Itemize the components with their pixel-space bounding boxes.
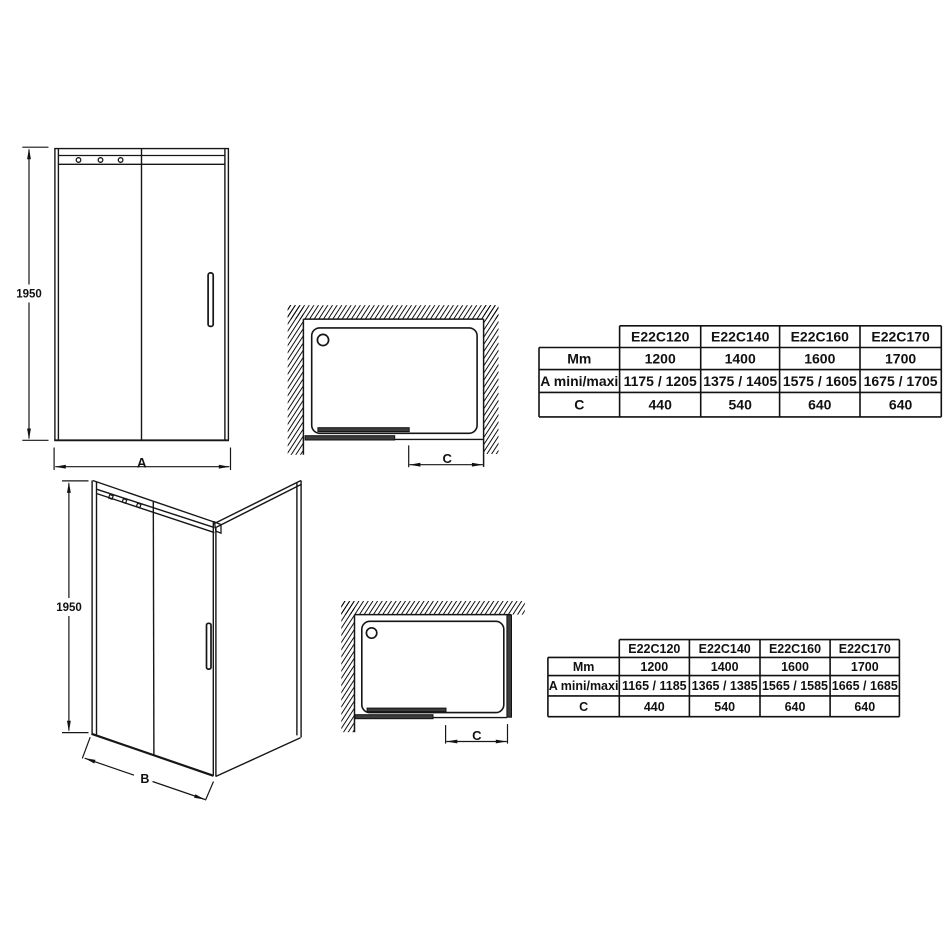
svg-text:1600: 1600 bbox=[781, 660, 809, 674]
svg-text:E22C120: E22C120 bbox=[631, 329, 690, 345]
svg-text:E22C140: E22C140 bbox=[699, 642, 751, 656]
svg-text:1600: 1600 bbox=[804, 351, 835, 367]
svg-text:1950: 1950 bbox=[16, 289, 42, 301]
svg-text:1375 / 1405: 1375 / 1405 bbox=[703, 373, 777, 389]
svg-text:A mini/maxi: A mini/maxi bbox=[540, 373, 618, 389]
svg-text:540: 540 bbox=[729, 397, 753, 413]
svg-text:A: A bbox=[137, 456, 147, 471]
svg-text:C: C bbox=[472, 728, 482, 743]
svg-text:640: 640 bbox=[785, 700, 806, 714]
svg-text:1665 / 1685: 1665 / 1685 bbox=[832, 679, 898, 693]
svg-text:440: 440 bbox=[644, 700, 665, 714]
svg-text:1950: 1950 bbox=[56, 602, 82, 614]
svg-text:1400: 1400 bbox=[711, 660, 739, 674]
svg-text:1200: 1200 bbox=[640, 660, 668, 674]
svg-text:E22C120: E22C120 bbox=[628, 642, 680, 656]
svg-text:E22C140: E22C140 bbox=[711, 329, 770, 345]
svg-text:Mm: Mm bbox=[573, 660, 595, 674]
svg-text:540: 540 bbox=[714, 700, 735, 714]
svg-text:E22C160: E22C160 bbox=[791, 329, 850, 345]
svg-text:1700: 1700 bbox=[851, 660, 879, 674]
svg-text:E22C160: E22C160 bbox=[769, 642, 821, 656]
svg-text:640: 640 bbox=[854, 700, 875, 714]
svg-text:640: 640 bbox=[808, 397, 832, 413]
svg-text:1575 / 1605: 1575 / 1605 bbox=[783, 373, 857, 389]
svg-text:1675 / 1705: 1675 / 1705 bbox=[864, 373, 938, 389]
svg-text:1565 / 1585: 1565 / 1585 bbox=[762, 679, 828, 693]
svg-text:1200: 1200 bbox=[645, 351, 676, 367]
svg-text:1400: 1400 bbox=[725, 351, 756, 367]
svg-text:C: C bbox=[574, 397, 584, 413]
svg-text:1365 / 1385: 1365 / 1385 bbox=[692, 679, 758, 693]
svg-text:1175 / 1205: 1175 / 1205 bbox=[624, 373, 697, 389]
svg-text:1700: 1700 bbox=[885, 351, 916, 367]
svg-text:A mini/maxi: A mini/maxi bbox=[549, 679, 619, 693]
svg-text:E22C170: E22C170 bbox=[871, 329, 930, 345]
svg-text:1165 / 1185: 1165 / 1185 bbox=[622, 679, 687, 693]
svg-text:Mm: Mm bbox=[567, 351, 591, 367]
svg-text:C: C bbox=[443, 451, 453, 466]
svg-text:640: 640 bbox=[889, 397, 913, 413]
svg-text:E22C170: E22C170 bbox=[839, 642, 891, 656]
svg-text:440: 440 bbox=[649, 397, 673, 413]
svg-text:B: B bbox=[140, 772, 149, 786]
svg-text:C: C bbox=[579, 700, 588, 714]
